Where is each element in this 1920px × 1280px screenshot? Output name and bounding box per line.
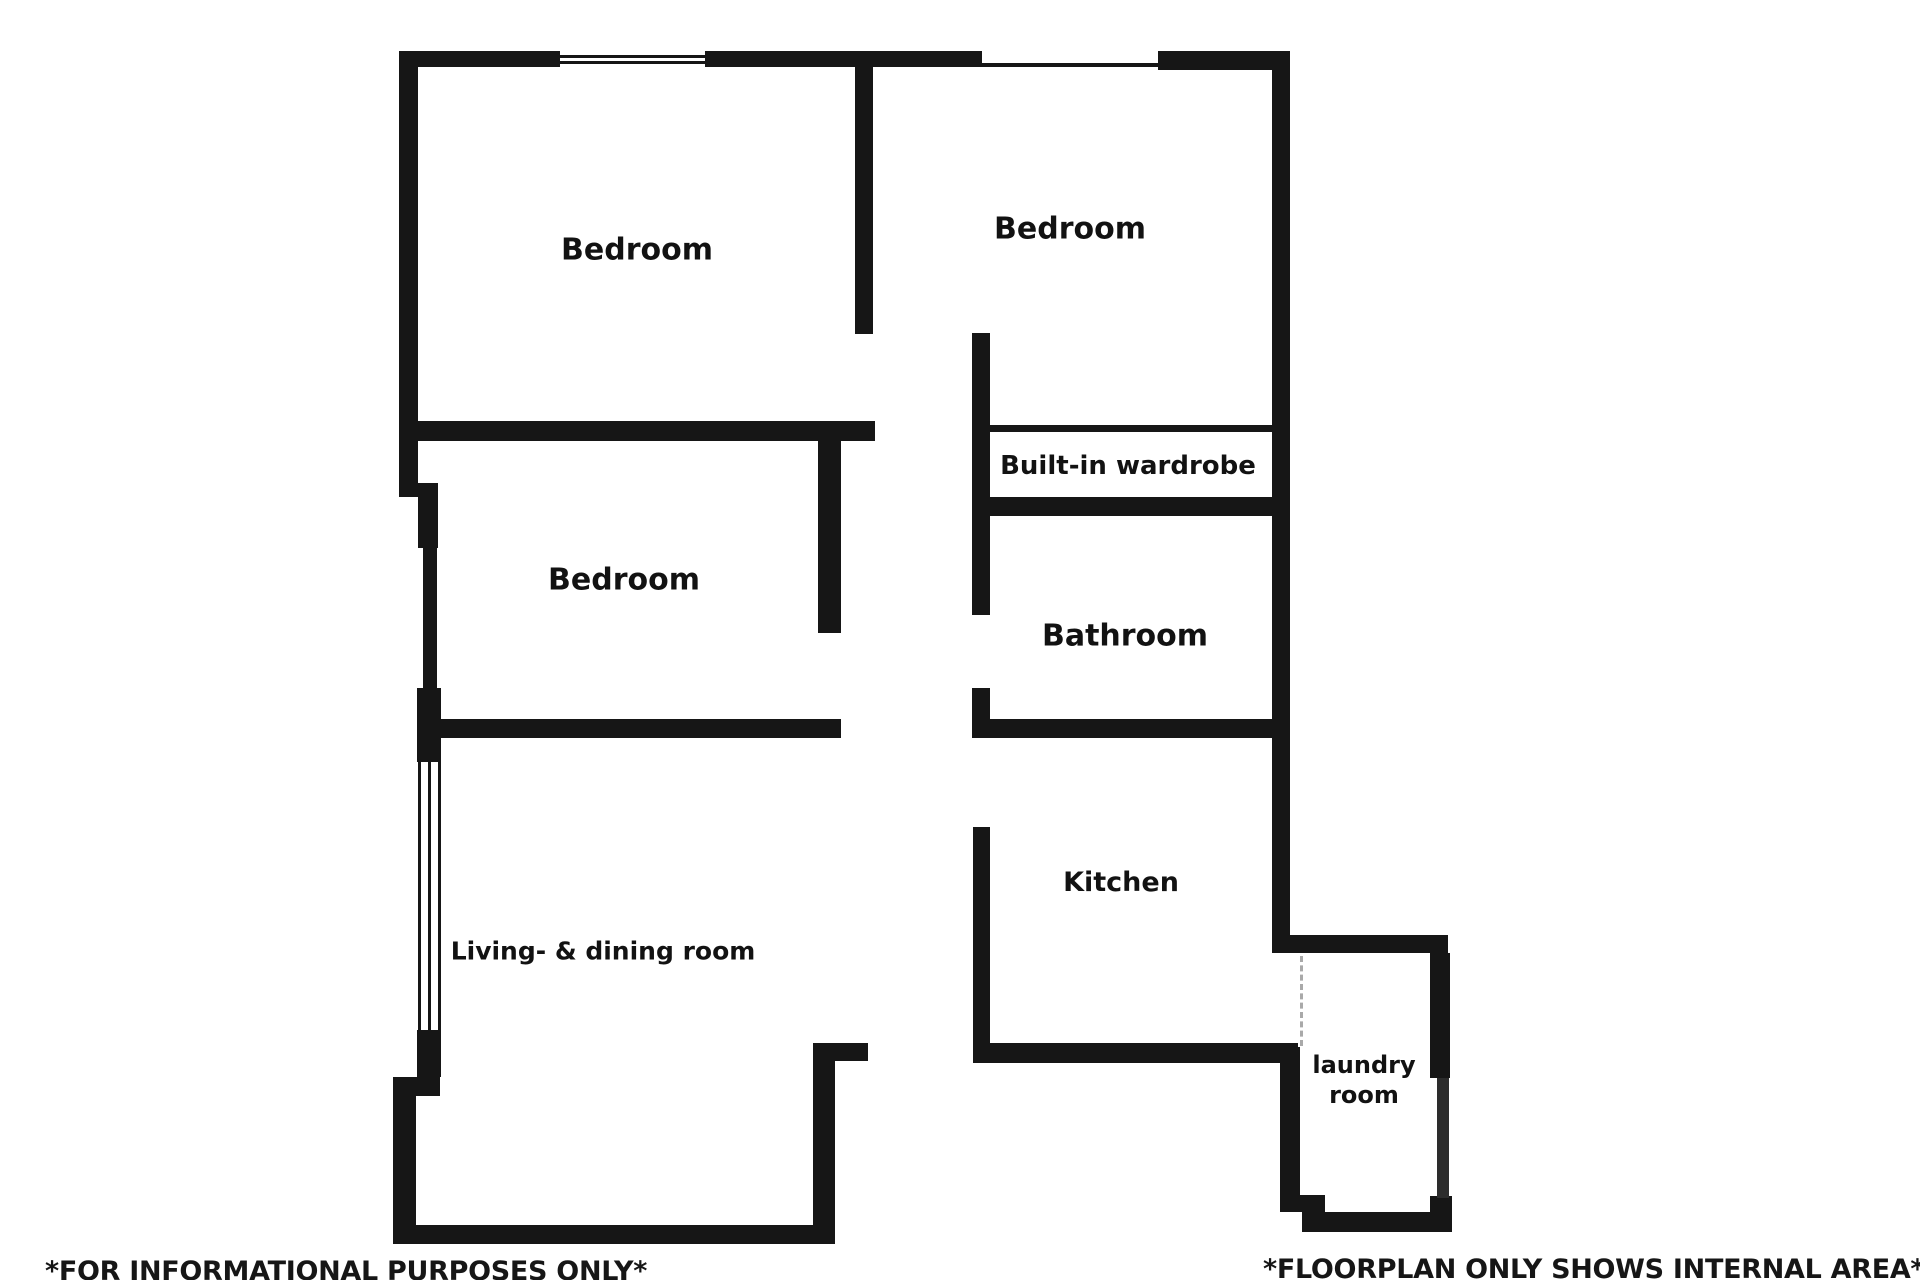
window-top-left-line-a — [560, 55, 705, 58]
left-bedrooms-divider-wall-wall — [415, 421, 875, 441]
room-label-kitchen: Kitchen — [1063, 866, 1179, 900]
middle-bedroom-right-wall-wall — [818, 441, 841, 633]
kitchen-left-wall-wall — [973, 827, 990, 1063]
laundry-left-wall-wall — [1280, 1047, 1300, 1212]
kitchen-laundry-opening-dash — [1300, 956, 1303, 1046]
wardrobe-left-wall-wall — [972, 333, 990, 615]
kitchen-bottom-wall-wall — [973, 1043, 1298, 1063]
window-living-line-mid — [428, 762, 431, 1030]
room-label-bedroom-top-left: Bedroom — [561, 231, 713, 269]
window-top-right-bg — [982, 51, 1158, 63]
left-wall-lower-wall — [393, 1096, 416, 1243]
room-label-bathroom: Bathroom — [1042, 617, 1208, 655]
laundry-step-block-wall — [1295, 1195, 1325, 1212]
wardrobe-front-line-wall — [990, 425, 1272, 432]
living-bottom-wall-wall — [393, 1225, 835, 1244]
room-label-living-dining: Living- & dining room — [451, 935, 756, 966]
laundry-bottom-wall-wall — [1302, 1212, 1450, 1232]
bathroom-bottom-wall-wall — [972, 719, 1290, 738]
window-living-line-left — [418, 762, 421, 1030]
room-label-laundry: laundry room — [1312, 1050, 1415, 1110]
left-step-bar-wall — [393, 1077, 440, 1096]
room-label-bedroom-top-right: Bedroom — [994, 210, 1146, 248]
caption-informational-purposes: *FOR INFORMATIONAL PURPOSES ONLY* — [45, 1257, 647, 1280]
left-wall-middle-thin-wall — [423, 548, 437, 689]
window-top-left-line-b — [560, 61, 705, 64]
caption-internal-area: *FLOORPLAN ONLY SHOWS INTERNAL AREA* — [1263, 1255, 1920, 1280]
floorplan-screenshot: BedroomBedroomBedroomBuilt-in wardrobeBa… — [0, 0, 1920, 1280]
living-top-wall-wall — [417, 719, 841, 738]
living-right-wall-wall — [813, 1043, 835, 1244]
top-bedrooms-divider-wall-wall — [855, 51, 873, 334]
window-top-left-bg — [560, 51, 705, 67]
left-step-block-wall — [418, 483, 438, 548]
laundry-top-wall-wall — [1290, 935, 1448, 953]
window-living-line-right — [438, 762, 441, 1030]
room-label-built-in-wardrobe: Built-in wardrobe — [1000, 450, 1256, 483]
top-right-corner-block-wall — [1158, 51, 1290, 70]
room-label-bedroom-middle: Bedroom — [548, 561, 700, 599]
left-window-lower-block-wall — [417, 1030, 441, 1077]
living-right-stub-wall — [835, 1043, 868, 1061]
window-laundry-bar — [1437, 1078, 1449, 1198]
laundry-right-wall-upper-wall — [1430, 953, 1450, 1078]
right-wall-main-wall — [1272, 51, 1290, 953]
wardrobe-bottom-wall-wall — [972, 497, 1272, 516]
